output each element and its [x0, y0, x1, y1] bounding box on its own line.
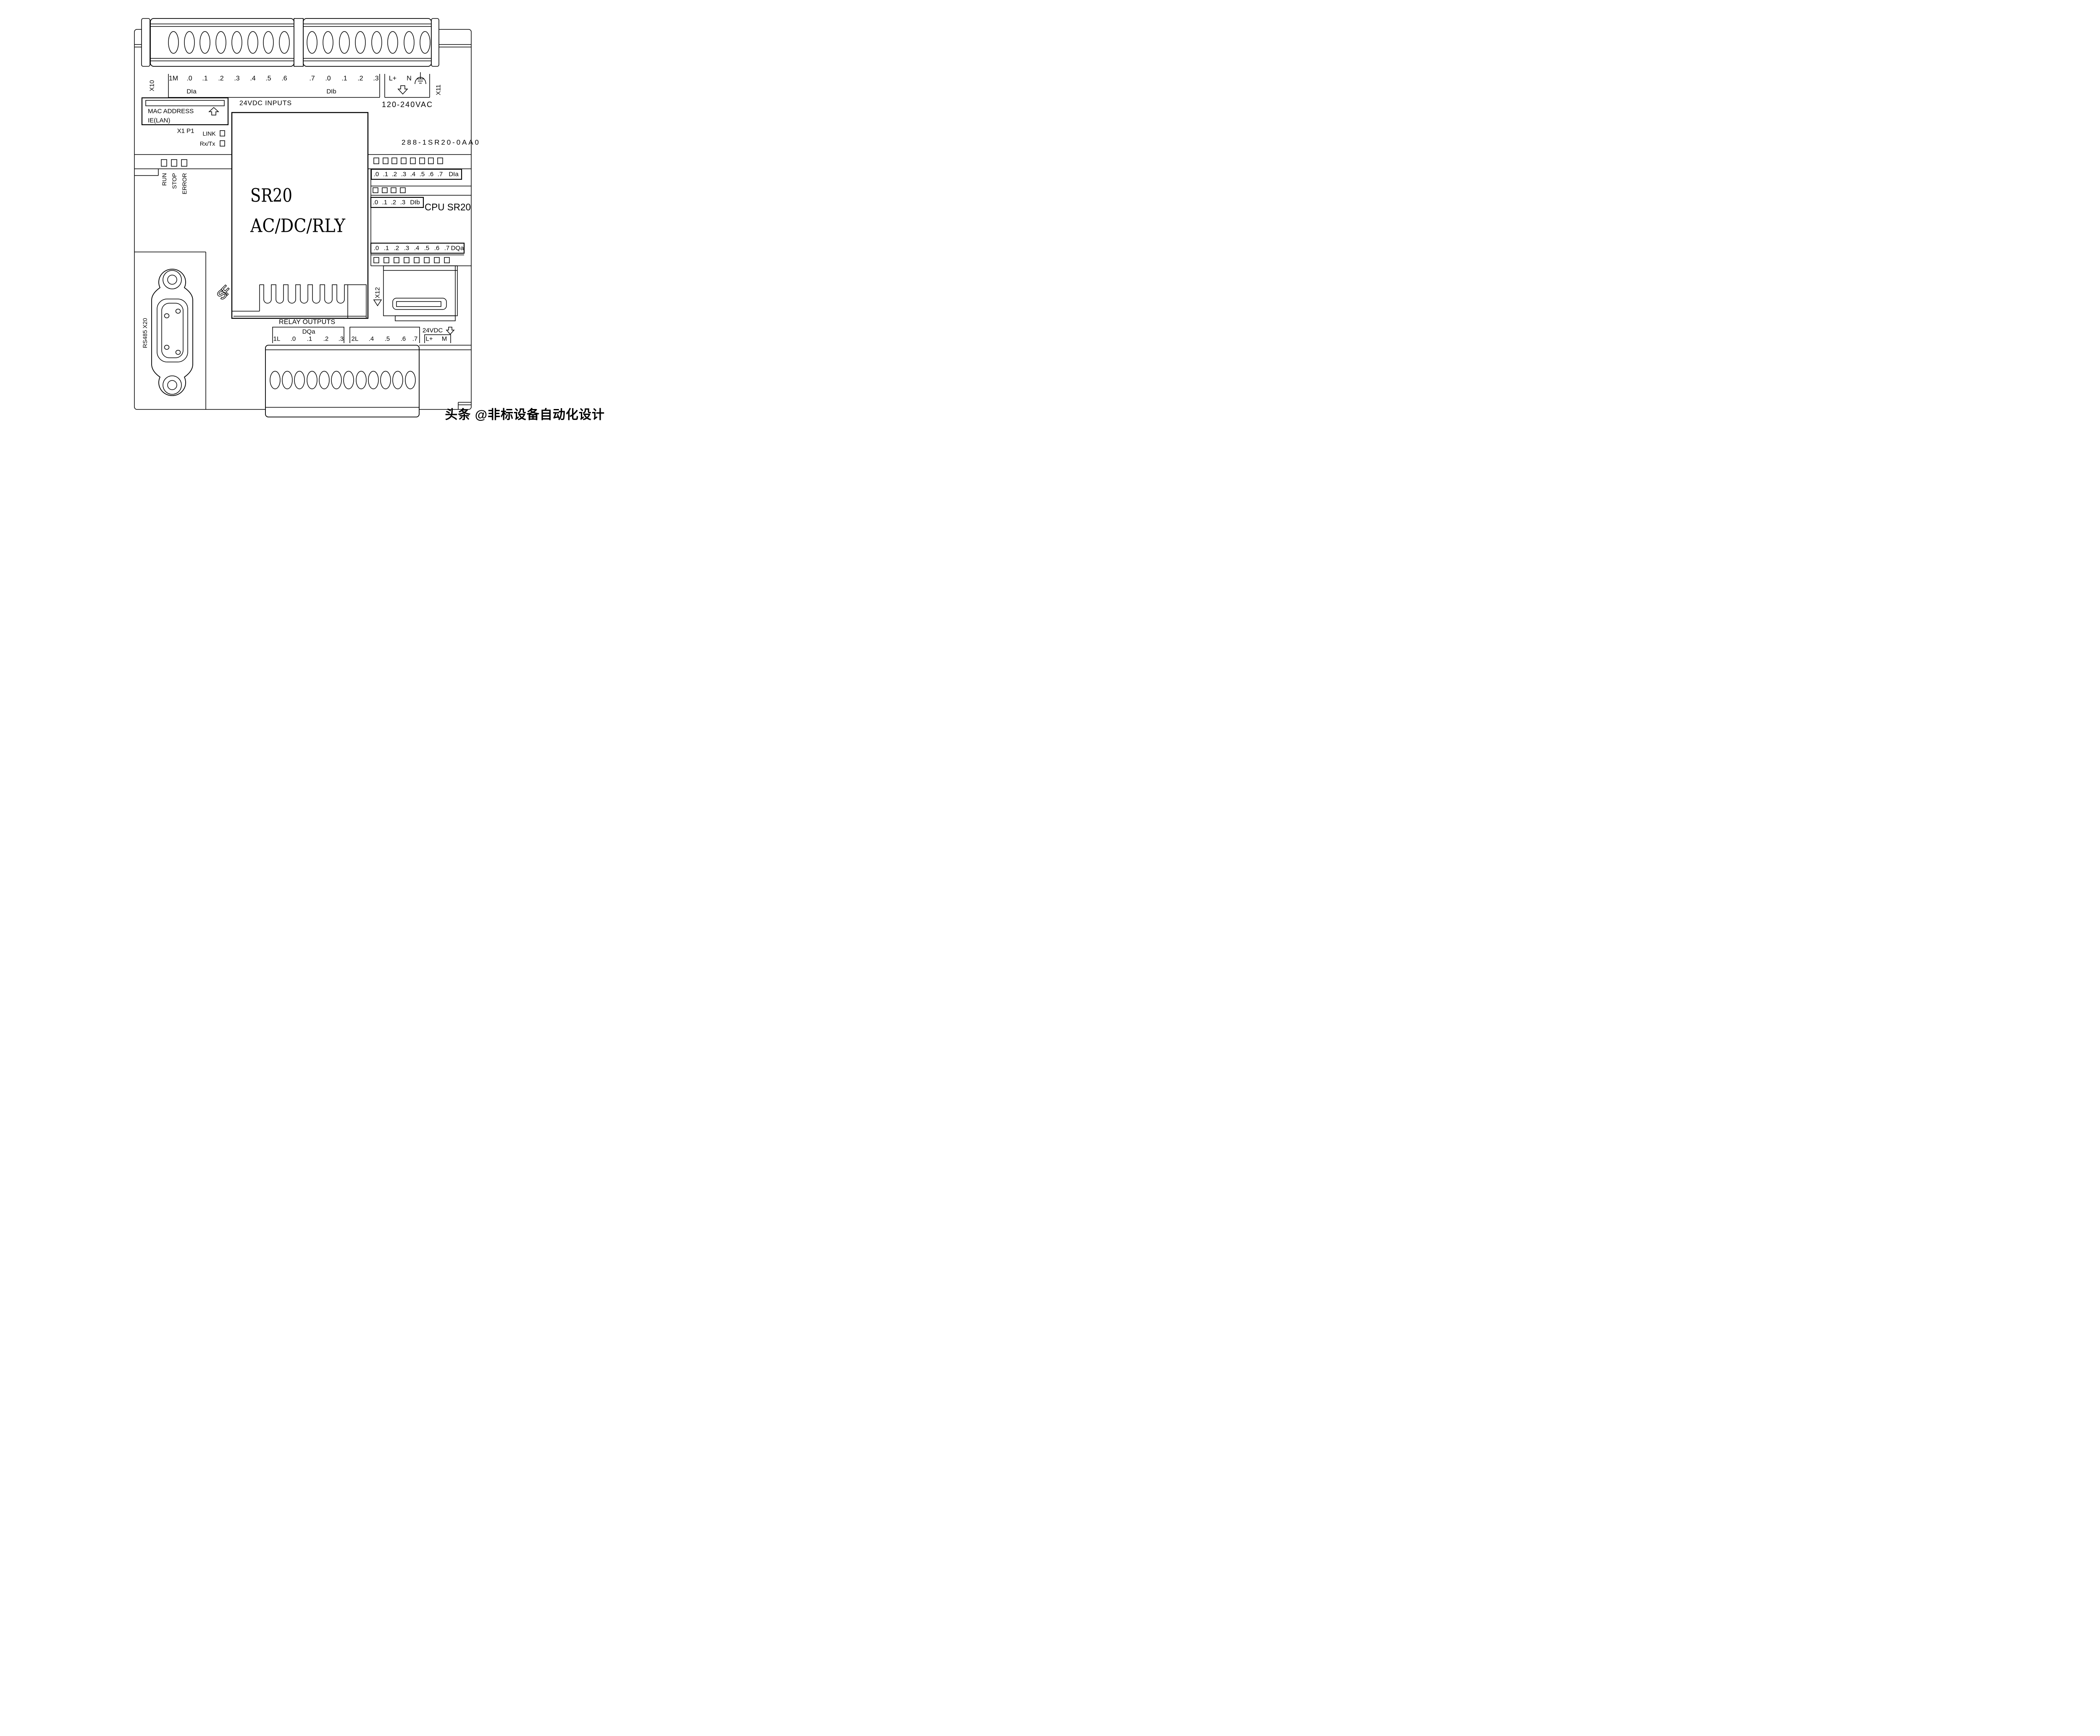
led-digit: .3 [401, 171, 407, 178]
plc-faceplate-diagram: 1M .0 .1 .2 .3 .4 .5 .6 .7 .0 .1 .2 .3 L… [0, 0, 614, 434]
led-digit: .7 [438, 171, 443, 178]
ethernet-area: MAC ADDRESS IE(LAN) X1 P1 LINK Rx/Tx [142, 98, 228, 147]
power-caption: 120-240VAC [382, 100, 432, 109]
terminal-label: .0 [186, 75, 192, 82]
group-label-dib: DIb [326, 88, 336, 95]
earth-ground-icon [415, 72, 426, 84]
led-digit: .3 [404, 245, 409, 252]
port-x1p1-label: X1 P1 [177, 128, 194, 135]
terminal-label: .1 [307, 336, 312, 343]
led-digit: .3 [400, 199, 406, 206]
power-out-arrow-icon [446, 327, 454, 334]
terminal-label: L+ [389, 75, 396, 82]
outputs-caption: RELAY OUTPUTS [279, 319, 335, 326]
terminal-label: .4 [250, 75, 255, 82]
connector-x12-label: X12 [374, 287, 381, 299]
dib-led-row [373, 188, 405, 193]
dib-label-row: .0 .1 .2 .3 DIb [371, 197, 423, 207]
terminal-label: .3 [373, 75, 378, 82]
led-digit: .5 [424, 245, 430, 252]
terminal-label: .2 [323, 336, 329, 343]
terminal-label: N [407, 75, 412, 82]
bottom-terminal-assembly [265, 345, 471, 417]
terminal-label: .2 [218, 75, 223, 82]
terminal-label: .3 [339, 336, 344, 343]
stop-led-label: STOP [171, 173, 178, 189]
led-row-group-label: DIa [449, 171, 459, 178]
terminal-label: .3 [234, 75, 239, 82]
terminal-label: L+ [425, 336, 433, 343]
rs485-db9-connector[interactable] [152, 269, 193, 396]
relay-output-labels: RELAY OUTPUTS DQa 1L .0 .1 .2 .3 2L .4 .… [273, 319, 454, 344]
sensor-supply-caption: 24VDC [423, 327, 443, 334]
connector-x10-label: X10 [149, 80, 156, 92]
card-slot[interactable] [393, 298, 446, 309]
terminal-label: .5 [385, 336, 390, 343]
top-terminal-assembly [134, 18, 471, 66]
led-digit: .0 [374, 245, 379, 252]
terminal-label: .0 [325, 75, 331, 82]
terminal-clip-left [142, 18, 150, 66]
led-digit: .2 [392, 171, 397, 178]
terminal-label: .7 [412, 336, 418, 343]
face-model: SR20 [250, 185, 292, 207]
led-row-group-label: DIb [410, 199, 420, 206]
power-in-arrow-icon [398, 86, 407, 94]
stop-led [171, 160, 177, 166]
led-digit: .6 [428, 171, 434, 178]
line-art: 1M .0 .1 .2 .3 .4 .5 .6 .7 .0 .1 .2 .3 L… [0, 0, 614, 434]
face-power-type: AC/DC/RLY [250, 215, 346, 237]
led-digit: .2 [394, 245, 399, 252]
led-digit: .0 [373, 199, 378, 206]
terminal-label: .7 [309, 75, 315, 82]
dia-led-row [374, 158, 443, 164]
led-digit: .0 [374, 171, 379, 178]
terminal-label: .2 [357, 75, 363, 82]
terminal-label: .6 [281, 75, 287, 82]
link-led [220, 131, 225, 136]
terminal-clip-right [431, 18, 439, 66]
rxtx-led-label: Rx/Tx [200, 140, 215, 147]
sf-logo-icon: SF [214, 283, 234, 303]
card-slot-marker-icon [374, 300, 381, 306]
led-row-group-label: DQa [451, 245, 465, 252]
terminal-label: .5 [265, 75, 271, 82]
error-led-label: ERROR [181, 173, 188, 194]
led-digit: .1 [383, 171, 388, 178]
cpu-name: CPU SR20 [425, 202, 471, 212]
connector-x11-label: X11 [435, 84, 442, 95]
rxtx-led [220, 141, 225, 146]
terminal-label: 2L [352, 336, 359, 343]
led-digit: .4 [410, 171, 416, 178]
error-led [181, 160, 187, 166]
led-digit: .4 [414, 245, 420, 252]
terminal-label: .1 [202, 75, 207, 82]
led-digit: .2 [391, 199, 396, 206]
dqa-label-row: .0 .1 .2 .3 .4 .5 .6 .7 DQa [371, 243, 464, 253]
terminal-clip-middle [294, 18, 303, 66]
group-label-dqa: DQa [302, 328, 316, 336]
rs485-port-label: RS485 X20 [142, 318, 148, 348]
terminal-block-dib-power [303, 18, 431, 66]
rs485-section: RS485 X20 [134, 252, 206, 409]
terminal-label: 1M [169, 75, 178, 82]
svg-text:SF: SF [214, 283, 234, 303]
terminal-label: .6 [401, 336, 406, 343]
mac-address-label: MAC ADDRESS [148, 108, 194, 115]
up-arrow-icon [209, 108, 218, 115]
dqa-led-row [374, 257, 449, 263]
terminal-block-dia [150, 18, 294, 66]
group-label-dia: DIa [186, 88, 197, 95]
card-slot-inner [396, 302, 441, 307]
link-led-label: LINK [202, 130, 216, 137]
led-digit: .1 [384, 245, 389, 252]
led-digit: .1 [382, 199, 388, 206]
dia-label-row: .0 .1 .2 .3 .4 .5 .6 .7 DIa [371, 169, 462, 179]
watermark-text: 头条 @非标设备自动化设计 [445, 408, 605, 422]
memory-card-door: X12 [371, 266, 471, 321]
order-number: 288-1SR20-0AA0 [402, 139, 479, 147]
run-led [161, 160, 167, 166]
terminal-label: .4 [369, 336, 374, 343]
led-digit: .6 [434, 245, 440, 252]
module-face: SR20 AC/DC/RLY [232, 113, 368, 318]
inputs-caption: 24VDC INPUTS [239, 100, 291, 107]
top-terminal-labels: 1M .0 .1 .2 .3 .4 .5 .6 .7 .0 .1 .2 .3 L… [149, 72, 442, 109]
terminal-label: .1 [341, 75, 347, 82]
terminal-label: .0 [291, 336, 296, 343]
terminal-label: 1L [273, 336, 281, 343]
run-led-label: RUN [161, 173, 168, 186]
led-digit: .5 [420, 171, 425, 178]
led-digit: .7 [444, 245, 450, 252]
mac-address-field [146, 100, 224, 106]
door-step [395, 316, 455, 321]
ie-lan-label: IE(LAN) [148, 117, 170, 124]
terminal-label: M [442, 336, 447, 343]
